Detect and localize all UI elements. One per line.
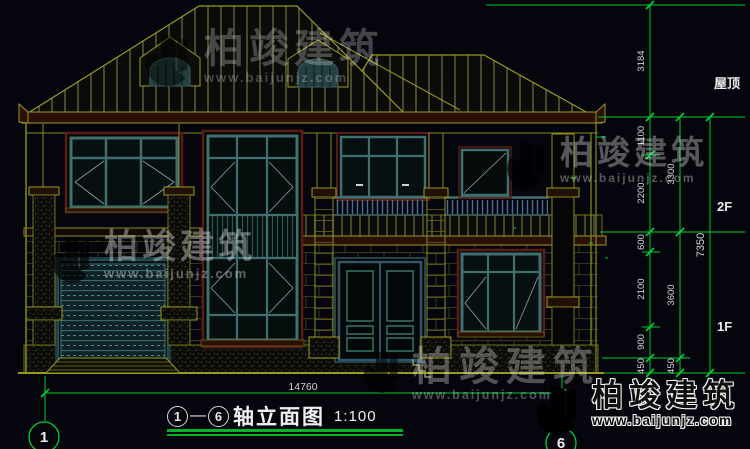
dim-900: 900	[636, 334, 647, 350]
dim-overall-width: 14760	[288, 381, 317, 393]
level-label-1f: 1F	[717, 319, 732, 334]
elevation-drawing-canvas: 3184 1100 2200 600 2100 900 450 3300 360…	[0, 0, 750, 449]
title-axis-start: 1	[167, 406, 188, 427]
entrance-door	[335, 258, 425, 362]
title-dash: —	[190, 407, 206, 425]
corner-window-2f-right	[459, 147, 511, 198]
balcony-railing-left	[333, 198, 427, 216]
driveway-ramp	[46, 358, 180, 373]
axis-bubble-1: 1	[29, 422, 59, 449]
dim-450b: 450	[666, 358, 677, 374]
pier-right	[547, 134, 579, 345]
title-axis-end: 6	[208, 406, 229, 427]
dim-7350: 7350	[695, 233, 707, 257]
dim-1100: 1100	[636, 126, 647, 146]
axis-bubble-6: 6	[546, 428, 576, 449]
dim-450a: 450	[636, 358, 647, 374]
window-2f-left	[66, 133, 182, 212]
dim-2200: 2200	[636, 182, 647, 203]
window-1f-right	[458, 250, 544, 337]
axis-digit-6: 6	[557, 435, 565, 449]
title-underline-bottom	[167, 434, 403, 436]
balcony-railing-right	[444, 198, 549, 216]
title-underline-top	[167, 429, 403, 432]
dim-3300: 3300	[666, 163, 677, 184]
dim-3600: 3600	[666, 284, 677, 305]
dim-600: 600	[636, 234, 647, 250]
cad-elevation-screenshot: 3184 1100 2200 600 2100 900 450 3300 360…	[0, 0, 750, 449]
title-scale: 1:100	[334, 408, 377, 425]
title-name: 轴立面图	[233, 401, 325, 431]
level-label-2f: 2F	[717, 199, 732, 214]
stairwell-window	[201, 131, 304, 347]
level-label-roof: 屋顶	[714, 76, 740, 91]
door-handle	[356, 184, 363, 186]
door-handle	[402, 184, 409, 186]
balcony-doors	[337, 133, 429, 200]
dim-3184: 3184	[636, 50, 647, 71]
axis-digit-1: 1	[40, 429, 48, 446]
roof	[19, 6, 605, 123]
garage-door	[56, 258, 170, 362]
drawing-title: 1 — 6 轴立面图 1:100	[167, 401, 377, 431]
dim-2100: 2100	[636, 278, 647, 299]
